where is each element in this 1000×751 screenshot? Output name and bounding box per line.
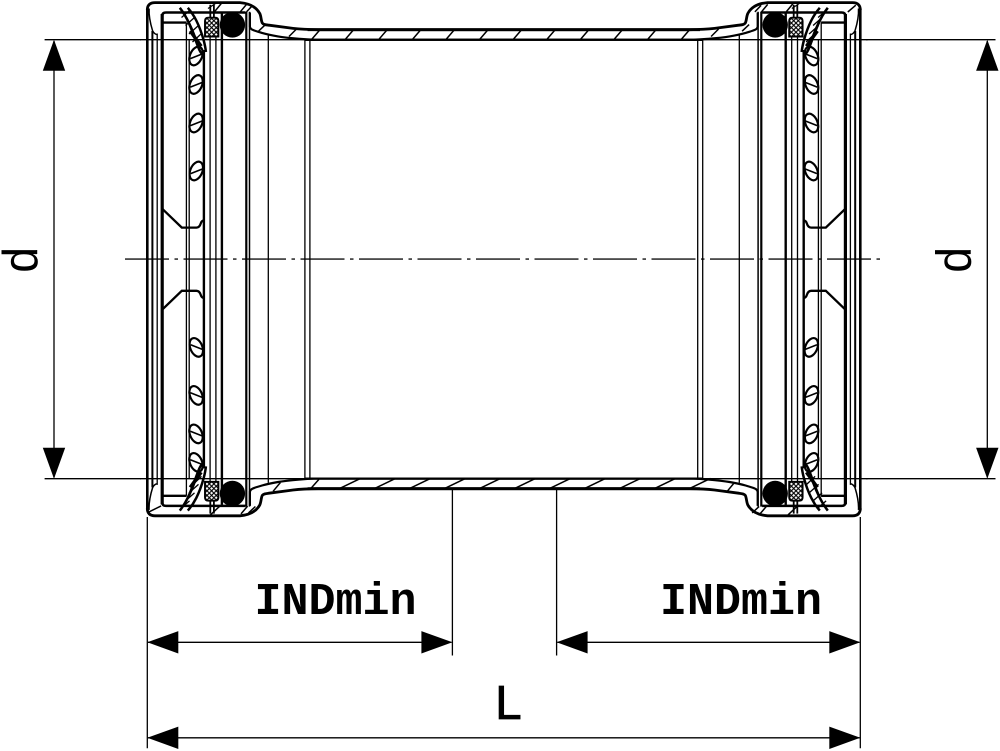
svg-text:INDmin: INDmin: [660, 577, 822, 628]
svg-text:d: d: [0, 246, 52, 274]
svg-text:d: d: [930, 246, 986, 274]
svg-text:L: L: [493, 678, 523, 735]
svg-text:INDmin: INDmin: [254, 577, 416, 628]
